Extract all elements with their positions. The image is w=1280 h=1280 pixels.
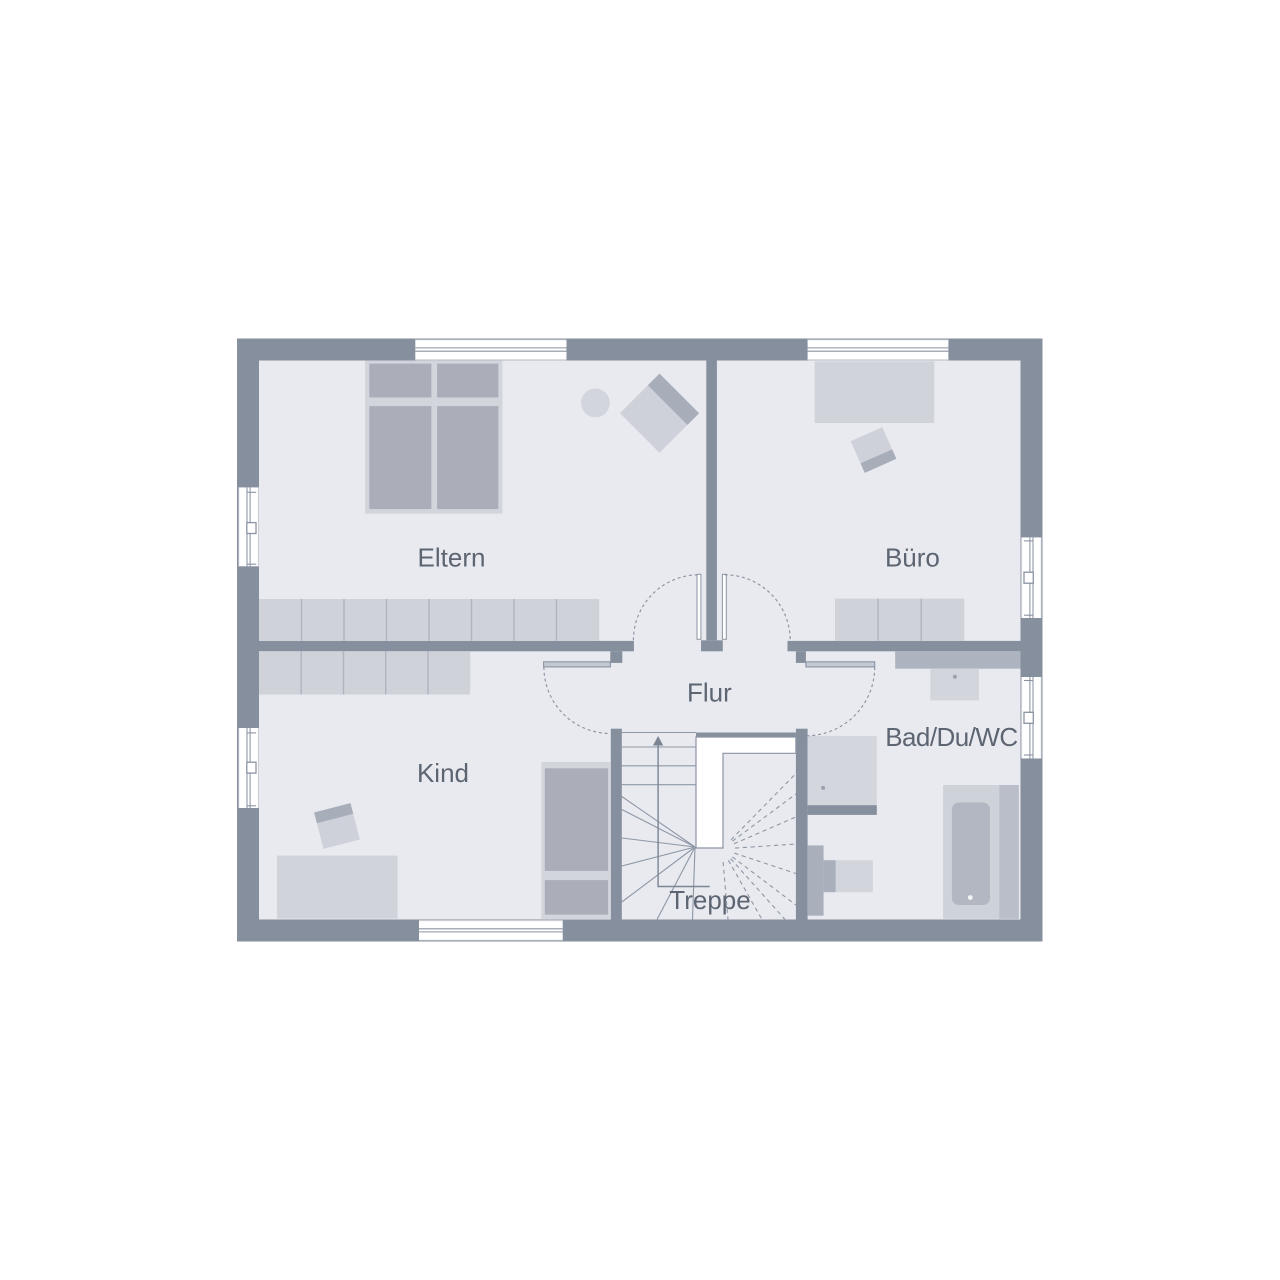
svg-text:Treppe: Treppe (669, 885, 750, 915)
svg-text:Bad/Du/WC: Bad/Du/WC (885, 722, 1017, 752)
svg-text:Flur: Flur (687, 678, 732, 708)
svg-text:Büro: Büro (885, 543, 940, 573)
svg-text:Eltern: Eltern (418, 543, 486, 573)
svg-text:Kind: Kind (417, 758, 469, 788)
